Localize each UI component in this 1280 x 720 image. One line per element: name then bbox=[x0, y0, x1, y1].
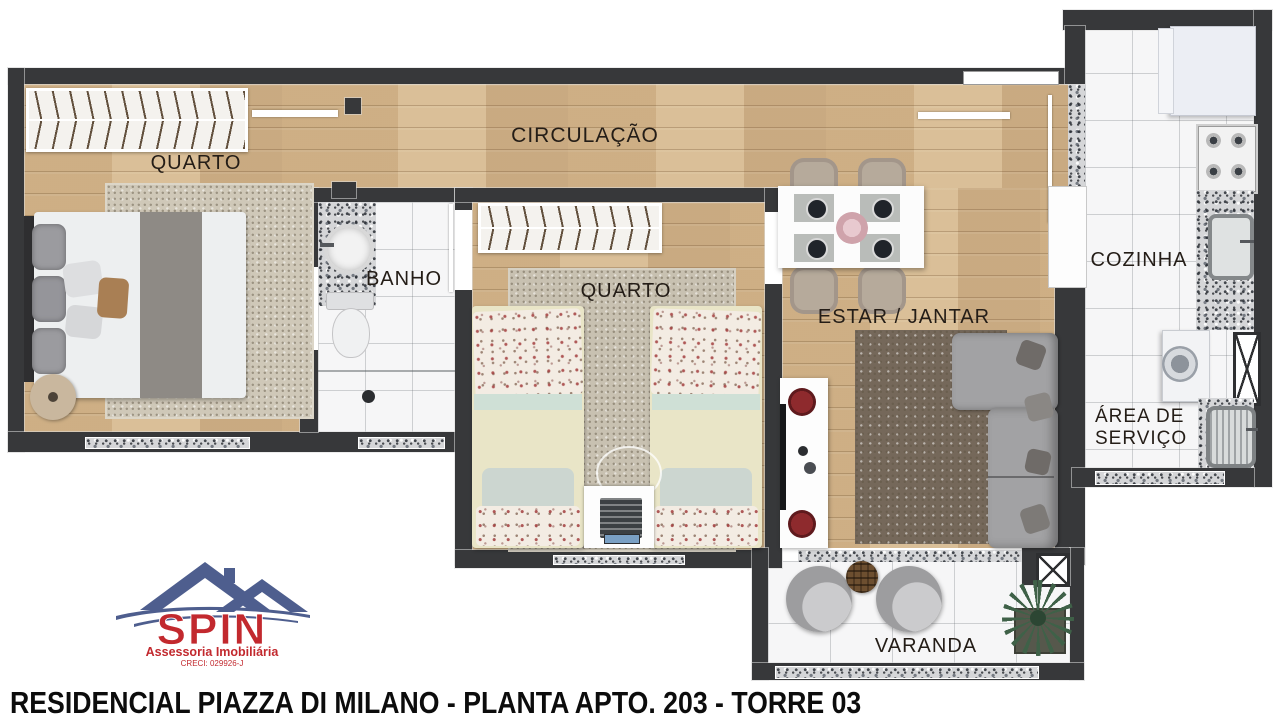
plan-title: RESIDENCIAL PIAZZA DI MILANO - PLANTA AP… bbox=[10, 685, 861, 720]
bedroom1-door-leaf bbox=[252, 110, 338, 117]
living-cabinet bbox=[1048, 186, 1087, 288]
shower-drain bbox=[362, 390, 375, 403]
wall-door-stub bbox=[345, 98, 361, 114]
dinner-plate bbox=[872, 198, 894, 220]
red-plant bbox=[788, 510, 816, 538]
wall-wing-left-stub bbox=[1065, 26, 1085, 84]
stove-burner bbox=[1231, 133, 1246, 148]
hallway-label: CIRCULAÇÃO bbox=[511, 124, 659, 148]
wall-top-main bbox=[8, 68, 1070, 84]
bed-runner bbox=[140, 212, 202, 398]
kitchen-sink bbox=[1208, 214, 1254, 280]
tv bbox=[780, 404, 786, 510]
bathroom-label: BANHO bbox=[366, 268, 442, 291]
dinner-plate bbox=[806, 198, 828, 220]
wardrobe-hangers-row bbox=[481, 206, 659, 227]
logo-creci: CRECI: 029926-J bbox=[181, 659, 244, 668]
bedroom2-window bbox=[553, 555, 685, 565]
twin-bed-right-pillow bbox=[651, 308, 762, 398]
balcony-chair bbox=[786, 566, 852, 632]
living-top-window bbox=[963, 71, 1059, 85]
laundry-faucet bbox=[1246, 428, 1258, 431]
living-label: ESTAR / JANTAR bbox=[818, 306, 990, 329]
sofa-cushion-line bbox=[988, 476, 1054, 478]
bathroom-door-leaf bbox=[449, 204, 453, 292]
bed-accent-pillow bbox=[97, 277, 130, 319]
balcony-table bbox=[846, 561, 878, 593]
laundry-sink bbox=[1206, 406, 1256, 468]
stove-burner bbox=[1206, 164, 1221, 179]
bed-pillow bbox=[32, 224, 66, 270]
bedroom1-window bbox=[85, 437, 250, 449]
toilet-bowl bbox=[332, 308, 370, 358]
twin-bed-right-sheet bbox=[652, 394, 760, 410]
wall-bedroom2-top bbox=[455, 188, 785, 202]
dinner-plate bbox=[806, 238, 828, 260]
shower-glass bbox=[318, 370, 455, 372]
stove-burner bbox=[1231, 164, 1246, 179]
wall-wing-right bbox=[1254, 10, 1272, 487]
hallway-floor bbox=[310, 84, 1070, 188]
bed-pillow bbox=[32, 328, 66, 374]
wall-living-right bbox=[1055, 285, 1085, 565]
laptop-screen bbox=[604, 534, 640, 544]
spin-logo-icon: SPIN Assessoria Imobiliária CRECI: 02992… bbox=[112, 550, 312, 668]
bathroom-faucet bbox=[320, 243, 334, 247]
side-table-decor bbox=[48, 392, 58, 402]
bathroom-door-opening bbox=[455, 210, 472, 290]
sofa-pillow bbox=[1024, 448, 1052, 476]
red-plant bbox=[788, 388, 816, 416]
service-side-window bbox=[1233, 332, 1261, 406]
bedroom2-label: QUARTO bbox=[581, 280, 672, 303]
bedroom1-wardrobe bbox=[26, 88, 248, 152]
decor-item bbox=[798, 446, 808, 456]
balcony-chair bbox=[876, 566, 942, 632]
balcony-slider-sill bbox=[798, 550, 1022, 562]
agency-logo: SPIN Assessoria Imobiliária CRECI: 02992… bbox=[112, 550, 312, 668]
bathroom-window bbox=[358, 437, 445, 449]
wardrobe-hangers-row bbox=[29, 91, 245, 119]
wall-left bbox=[8, 68, 24, 452]
kitchen-threshold bbox=[1068, 84, 1085, 200]
twin-bed-left-pillow bbox=[473, 308, 584, 398]
logo-tagline: Assessoria Imobiliária bbox=[146, 645, 280, 659]
wall-balcony-left bbox=[752, 548, 768, 680]
service-window bbox=[1095, 471, 1225, 485]
plant-center bbox=[1030, 610, 1046, 626]
decor-item bbox=[804, 462, 816, 474]
floor-plan-canvas: QUARTO CIRCULAÇÃO BANHO QUARTO ESTAR / J… bbox=[0, 0, 1280, 720]
laptop bbox=[600, 498, 642, 538]
service-label: ÁREA DE SERVIÇO bbox=[1095, 406, 1195, 450]
fridge-door bbox=[1158, 28, 1174, 114]
washer-door bbox=[1162, 346, 1198, 382]
twin-bed-left-sheet bbox=[474, 394, 582, 410]
balcony-label: VARANDA bbox=[875, 635, 977, 658]
entry-door-leaf bbox=[918, 112, 1010, 119]
stove-burner bbox=[1206, 133, 1221, 148]
bedroom1-label: QUARTO bbox=[151, 152, 242, 175]
kitchen-faucet bbox=[1240, 240, 1254, 243]
wardrobe-hangers-row bbox=[29, 121, 245, 149]
twin-bed-left-foot bbox=[476, 506, 580, 546]
wall-bathroom-top bbox=[300, 188, 455, 202]
stove bbox=[1196, 124, 1258, 194]
wall-duct-stub bbox=[332, 182, 356, 198]
bedroom2-wardrobe bbox=[478, 203, 662, 253]
bed-pillow bbox=[32, 276, 66, 322]
table-centerpiece bbox=[836, 212, 868, 244]
fridge bbox=[1170, 26, 1256, 116]
twin-bed-right-foot bbox=[654, 506, 758, 546]
balcony-window bbox=[775, 666, 1039, 679]
dinner-plate bbox=[872, 238, 894, 260]
bathroom-sink bbox=[324, 224, 374, 274]
kitchen-label: COZINHA bbox=[1091, 249, 1188, 272]
wardrobe-hangers-row bbox=[481, 229, 659, 250]
